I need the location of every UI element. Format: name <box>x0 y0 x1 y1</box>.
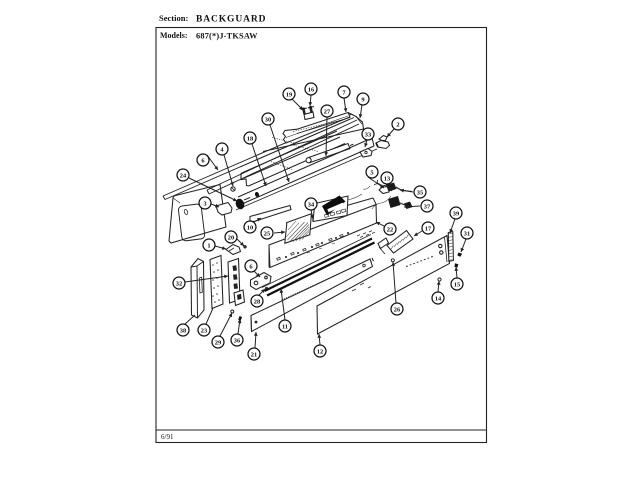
svg-text:29: 29 <box>215 339 221 346</box>
svg-text:687(*)J-TKSAW: 687(*)J-TKSAW <box>196 32 258 41</box>
svg-text:Models:: Models: <box>160 31 188 40</box>
svg-text:15: 15 <box>454 281 460 288</box>
svg-text:2: 2 <box>396 121 399 128</box>
svg-text:23: 23 <box>201 327 207 334</box>
svg-text:26: 26 <box>394 306 401 313</box>
svg-text:32: 32 <box>176 280 182 287</box>
svg-text:13: 13 <box>384 175 390 182</box>
svg-text:Section:: Section: <box>159 13 188 23</box>
svg-text:14: 14 <box>435 295 442 302</box>
svg-text:6/91: 6/91 <box>161 433 174 441</box>
svg-text:17: 17 <box>425 225 432 232</box>
svg-text:39: 39 <box>453 210 459 217</box>
svg-text:38: 38 <box>180 327 186 334</box>
svg-text:27: 27 <box>324 108 331 115</box>
svg-text:10: 10 <box>247 224 253 231</box>
svg-text:11: 11 <box>282 323 288 330</box>
svg-text:31: 31 <box>464 230 470 237</box>
svg-text:18: 18 <box>247 135 253 142</box>
svg-text:35: 35 <box>417 189 423 196</box>
svg-text:5: 5 <box>370 169 373 176</box>
svg-text:9: 9 <box>361 96 364 103</box>
svg-text:34: 34 <box>308 201 315 208</box>
svg-text:3: 3 <box>203 200 206 207</box>
svg-text:1: 1 <box>207 242 210 249</box>
svg-text:BACKGUARD: BACKGUARD <box>196 15 266 25</box>
svg-text:24: 24 <box>180 172 187 179</box>
svg-text:20: 20 <box>228 234 234 241</box>
svg-text:22: 22 <box>387 226 393 233</box>
svg-text:21: 21 <box>251 351 257 358</box>
svg-text:19: 19 <box>286 91 292 98</box>
svg-text:37: 37 <box>424 203 431 210</box>
svg-text:12: 12 <box>317 348 323 355</box>
svg-text:25: 25 <box>264 230 270 237</box>
svg-text:28: 28 <box>254 298 260 305</box>
svg-text:36: 36 <box>234 337 241 344</box>
svg-text:33: 33 <box>365 131 371 138</box>
svg-text:16: 16 <box>308 86 315 93</box>
svg-text:30: 30 <box>265 116 271 123</box>
